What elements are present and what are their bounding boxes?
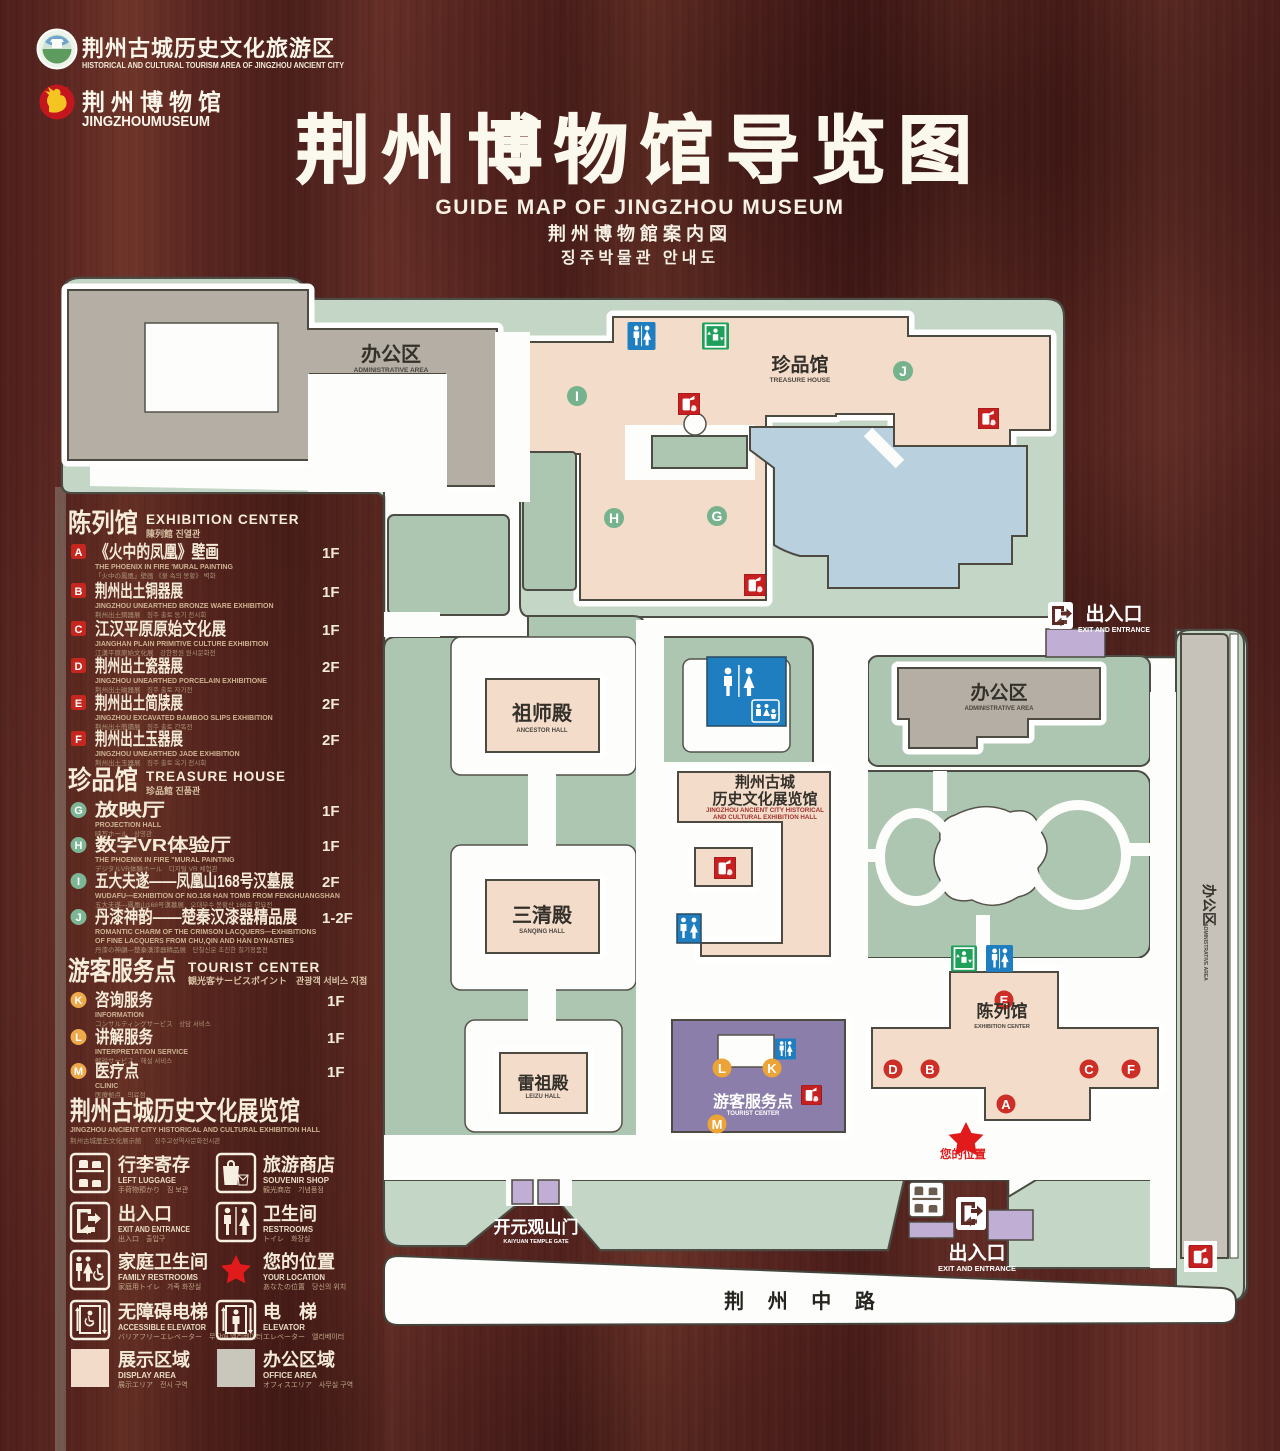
svg-text:丹漆神韵——楚秦汉漆器精品展: 丹漆神韵——楚秦汉漆器精品展 xyxy=(95,907,297,927)
svg-text:2F: 2F xyxy=(322,874,340,891)
svg-text:観光商店 기념품점: 観光商店 기념품점 xyxy=(263,1185,324,1194)
svg-text:办公区: 办公区 xyxy=(970,681,1027,704)
svg-text:ANCESTOR HALL: ANCESTOR HALL xyxy=(516,728,568,734)
svg-text:SANQING HALL: SANQING HALL xyxy=(519,929,565,935)
svg-text:荆州出土玉器展: 荆州出土玉器展 xyxy=(95,729,183,749)
svg-text:E: E xyxy=(75,698,82,710)
svg-text:観光客サービスポイント 관광객 서비스 지점: 観光客サービスポイント 관광객 서비스 지점 xyxy=(188,975,367,986)
svg-text:FAMILY RESTROOMS: FAMILY RESTROOMS xyxy=(118,1272,198,1282)
svg-text:RESTROOMS: RESTROOMS xyxy=(263,1224,313,1234)
svg-text:あなたの位置 당신의 위치: あなたの位置 당신의 위치 xyxy=(263,1282,346,1291)
svg-text:1-2F: 1-2F xyxy=(322,910,353,927)
svg-text:INFORMATION: INFORMATION xyxy=(95,1012,144,1019)
svg-text:丹漆の神韻—楚秦漢漆器精品展 단칠신운 초진한 칠기정품전: 丹漆の神韻—楚秦漢漆器精品展 단칠신운 초진한 칠기정품전 xyxy=(95,945,268,954)
svg-text:ADMINISTRATIVE AREA: ADMINISTRATIVE AREA xyxy=(965,706,1035,712)
svg-text:荆州古城历史文化旅游区: 荆州古城历史文化旅游区 xyxy=(82,36,335,61)
svg-text:エレベーター 엘리베이터: エレベーター 엘리베이터 xyxy=(263,1332,344,1341)
svg-text:办公区: 办公区 xyxy=(1201,884,1217,926)
svg-text:I: I xyxy=(77,876,80,888)
svg-text:医疗点: 医疗点 xyxy=(95,1061,139,1081)
svg-text:JINGZHOU UNEARTHED BRONZE WARE: JINGZHOU UNEARTHED BRONZE WARE EXHIBITIO… xyxy=(95,603,274,610)
svg-text:ELEVATOR: ELEVATOR xyxy=(263,1322,306,1332)
svg-text:「火中の鳳凰」壁画 《불 속의 봉황》 벽화: 「火中の鳳凰」壁画 《불 속의 봉황》 벽화 xyxy=(95,571,216,580)
svg-text:TOURIST CENTER: TOURIST CENTER xyxy=(727,1111,780,1117)
svg-text:1F: 1F xyxy=(322,622,340,639)
svg-text:无障碍电梯: 无障碍电梯 xyxy=(118,1301,208,1322)
svg-text:荆州出土铜器展: 荆州出土铜器展 xyxy=(95,581,183,601)
svg-text:您的位置: 您的位置 xyxy=(940,1147,986,1161)
svg-text:江汉平原原始文化展: 江汉平原原始文化展 xyxy=(95,619,226,639)
svg-text:出入口: 出入口 xyxy=(1085,602,1142,625)
svg-text:SOUVENIR SHOP: SOUVENIR SHOP xyxy=(263,1175,329,1185)
svg-text:荆州博物館案内図: 荆州博物館案内図 xyxy=(548,223,732,244)
svg-text:ADMINISTRATIVE AREA: ADMINISTRATIVE AREA xyxy=(354,367,429,374)
svg-text:三清殿: 三清殿 xyxy=(512,903,573,927)
svg-text:荆州出土瓷器展: 荆州出土瓷器展 xyxy=(95,656,183,676)
svg-text:D: D xyxy=(888,1062,897,1077)
svg-text:INTERPRETATION SERVICE: INTERPRETATION SERVICE xyxy=(95,1049,188,1056)
svg-text:ROMANTIC CHARM OF THE CRIMSON: ROMANTIC CHARM OF THE CRIMSON LACQUERS—E… xyxy=(95,929,317,936)
svg-text:JIANGHAN PLAIN PRIMITIVE CULTU: JIANGHAN PLAIN PRIMITIVE CULTURE EXHIBIT… xyxy=(95,641,268,648)
svg-text:OF FINE LACQUERS FROM CHU,QIN: OF FINE LACQUERS FROM CHU,QIN AND HAN DY… xyxy=(95,938,294,945)
svg-text:旅游商店: 旅游商店 xyxy=(263,1154,335,1175)
svg-text:出入口 출입구: 出入口 출입구 xyxy=(118,1234,166,1243)
svg-text:JINGZHOU ANCIENT CITY HISTORIC: JINGZHOU ANCIENT CITY HISTORICAL AND CUL… xyxy=(70,1127,321,1134)
svg-text:荆州古城: 荆州古城 xyxy=(735,773,795,791)
svg-text:B: B xyxy=(925,1062,934,1077)
svg-text:JINGZHOUMUSEUM: JINGZHOUMUSEUM xyxy=(82,114,210,130)
svg-text:YOUR LOCATION: YOUR LOCATION xyxy=(263,1272,325,1282)
svg-text:历史文化展览馆: 历史文化展览馆 xyxy=(712,790,817,808)
svg-text:ADMINISTRATIVE AREA: ADMINISTRATIVE AREA xyxy=(1202,923,1208,981)
svg-text:GUIDE MAP OF JINGZHOU MUSEUM: GUIDE MAP OF JINGZHOU MUSEUM xyxy=(435,196,844,219)
svg-text:G: G xyxy=(74,805,83,817)
svg-text:出入口: 出入口 xyxy=(948,1241,1005,1264)
svg-text:H: H xyxy=(609,510,619,526)
svg-text:办公区: 办公区 xyxy=(361,342,421,366)
svg-text:陳列館 진열관: 陳列館 진열관 xyxy=(146,528,201,539)
svg-text:EXIT AND ENTRANCE: EXIT AND ENTRANCE xyxy=(938,1264,1016,1273)
svg-text:TREASURE HOUSE: TREASURE HOUSE xyxy=(146,769,286,784)
svg-text:行李寄存: 行李寄存 xyxy=(117,1154,190,1175)
svg-text:荆州古城歴史文化展示館 징주고성역사문화전시관: 荆州古城歴史文化展示館 징주고성역사문화전시관 xyxy=(70,1136,220,1145)
svg-text:珍品館 진품관: 珍品館 진품관 xyxy=(146,785,201,796)
svg-text:AND CULTURAL EXHIBITION HALL: AND CULTURAL EXHIBITION HALL xyxy=(713,815,817,821)
svg-text:家庭用トイレ 가족 화장실: 家庭用トイレ 가족 화장실 xyxy=(118,1282,201,1291)
svg-text:EXHIBITION CENTER: EXHIBITION CENTER xyxy=(146,512,300,527)
svg-text:电 梯: 电 梯 xyxy=(263,1301,317,1322)
svg-text:出入口: 出入口 xyxy=(118,1203,172,1224)
svg-text:LEFT LUGGAGE: LEFT LUGGAGE xyxy=(118,1175,176,1185)
svg-text:LEIZU HALL: LEIZU HALL xyxy=(526,1094,561,1100)
svg-text:J: J xyxy=(75,912,81,924)
svg-text:1F: 1F xyxy=(322,584,340,601)
svg-text:开元观山门: 开元观山门 xyxy=(494,1217,579,1237)
svg-text:ACCESSIBLE ELEVATOR: ACCESSIBLE ELEVATOR xyxy=(118,1322,207,1332)
svg-text:JINGZHOU ANCIENT CITY HISTORIC: JINGZHOU ANCIENT CITY HISTORICAL xyxy=(706,808,824,814)
svg-text:游客服务点: 游客服务点 xyxy=(713,1092,793,1111)
svg-text:讲解服务: 讲解服务 xyxy=(95,1027,153,1047)
svg-text:C: C xyxy=(1084,1062,1094,1077)
svg-text:A: A xyxy=(1001,1097,1011,1112)
svg-text:PROJECTION HALL: PROJECTION HALL xyxy=(95,822,162,829)
svg-text:DISPLAY AREA: DISPLAY AREA xyxy=(118,1370,176,1380)
svg-text:数字VR体验厅: 数字VR体验厅 xyxy=(95,835,232,855)
svg-text:WUDAFU—EXHIBITION OF NO.168 HA: WUDAFU—EXHIBITION OF NO.168 HAN TOMB FRO… xyxy=(95,893,340,900)
svg-text:EXIT AND ENTRANCE: EXIT AND ENTRANCE xyxy=(1078,627,1150,634)
svg-text:G: G xyxy=(712,508,723,524)
svg-text:荆州博物馆: 荆州博物馆 xyxy=(82,89,227,115)
svg-text:JINGZHOU UNEARTHED PORCELAIN E: JINGZHOU UNEARTHED PORCELAIN EXHIBITIONE xyxy=(95,678,267,685)
svg-text:办公区域: 办公区域 xyxy=(263,1349,335,1370)
svg-text:荆州博物馆导览图: 荆州博物馆导览图 xyxy=(296,109,984,192)
svg-text:1F: 1F xyxy=(327,1064,345,1081)
svg-text:EXHIBITION CENTER: EXHIBITION CENTER xyxy=(974,1024,1030,1030)
svg-text:陈列馆: 陈列馆 xyxy=(977,1001,1028,1021)
svg-text:H: H xyxy=(75,840,83,852)
svg-text:荆 州 中 路: 荆 州 中 路 xyxy=(724,1289,884,1313)
svg-text:1F: 1F xyxy=(322,803,340,820)
svg-text:卫生间: 卫生间 xyxy=(263,1203,317,1224)
svg-text:JINGZHOU UNEARTHED JADE EXHIBI: JINGZHOU UNEARTHED JADE EXHIBITION xyxy=(95,751,240,758)
svg-text:トイレ 화장실: トイレ 화장실 xyxy=(263,1234,310,1243)
svg-text:1F: 1F xyxy=(322,545,340,562)
svg-text:1F: 1F xyxy=(327,993,345,1010)
svg-text:2F: 2F xyxy=(322,696,340,713)
svg-text:OFFICE AREA: OFFICE AREA xyxy=(263,1370,317,1380)
svg-text:F: F xyxy=(1127,1062,1135,1077)
svg-text:咨询服务: 咨询服务 xyxy=(95,990,153,1010)
svg-text:1F: 1F xyxy=(327,1030,345,1047)
svg-text:TOURIST CENTER: TOURIST CENTER xyxy=(188,960,320,975)
svg-text:D: D xyxy=(75,661,83,673)
svg-text:THE PHOENIX IN FIRE "MURAL PAI: THE PHOENIX IN FIRE "MURAL PAINTING xyxy=(95,857,235,864)
svg-text:M: M xyxy=(712,1117,723,1132)
svg-text:HISTORICAL AND CULTURAL TOURIS: HISTORICAL AND CULTURAL TOURISM AREA OF … xyxy=(82,60,344,70)
svg-text:珍品馆: 珍品馆 xyxy=(771,353,828,376)
svg-text:祖师殿: 祖师殿 xyxy=(511,701,573,725)
svg-text:2F: 2F xyxy=(322,732,340,749)
svg-text:放映厅: 放映厅 xyxy=(94,800,166,820)
svg-text:展示エリア 전시 구역: 展示エリア 전시 구역 xyxy=(118,1380,188,1389)
svg-text:荆州出土銅器展 징주 출토 동기 전시회: 荆州出土銅器展 징주 출토 동기 전시회 xyxy=(95,610,206,619)
svg-text:TREASURE HOUSE: TREASURE HOUSE xyxy=(770,377,831,384)
svg-text:珍品馆: 珍品馆 xyxy=(68,765,138,795)
svg-text:KAIYUAN TEMPLE GATE: KAIYUAN TEMPLE GATE xyxy=(503,1239,569,1245)
svg-text:THE PHOENIX IN FIRE 'MURAL PAI: THE PHOENIX IN FIRE 'MURAL PAINTING xyxy=(95,564,233,571)
svg-text:展示区域: 展示区域 xyxy=(118,1349,190,1370)
svg-text:JINGZHOU EXCAVATED BAMBOO SLIP: JINGZHOU EXCAVATED BAMBOO SLIPS EXHIBITI… xyxy=(95,715,273,722)
svg-text:C: C xyxy=(75,624,83,636)
svg-text:B: B xyxy=(75,586,83,598)
svg-text:家庭卫生间: 家庭卫生间 xyxy=(118,1251,208,1272)
svg-text:EXIT AND ENTRANCE: EXIT AND ENTRANCE xyxy=(118,1224,190,1234)
svg-text:荆州出土简牍展: 荆州出土简牍展 xyxy=(95,693,183,713)
svg-text:雷祖殿: 雷祖殿 xyxy=(518,1073,570,1093)
svg-text:A: A xyxy=(75,547,83,559)
svg-text:K: K xyxy=(75,995,83,1007)
svg-text:游客服务点: 游客服务点 xyxy=(68,956,176,986)
svg-text:징주박물관 안내도: 징주박물관 안내도 xyxy=(561,248,719,267)
svg-text:荆州古城历史文化展览馆: 荆州古城历史文化展览馆 xyxy=(70,1096,300,1126)
svg-text:手荷物預かり 짐 보관: 手荷物預かり 짐 보관 xyxy=(118,1185,189,1194)
svg-text:2F: 2F xyxy=(322,659,340,676)
svg-text:1F: 1F xyxy=(322,838,340,855)
svg-text:F: F xyxy=(75,734,82,746)
svg-text:I: I xyxy=(575,388,579,404)
svg-text:J: J xyxy=(899,363,907,379)
svg-text:L: L xyxy=(718,1061,726,1076)
svg-text:オフィスエリア 사무실 구역: オフィスエリア 사무실 구역 xyxy=(263,1380,353,1389)
svg-text:L: L xyxy=(75,1032,82,1044)
svg-text:《火中的凤凰》壁画: 《火中的凤凰》壁画 xyxy=(95,542,219,562)
svg-text:您的位置: 您的位置 xyxy=(263,1251,335,1272)
svg-text:CLINIC: CLINIC xyxy=(95,1083,118,1090)
svg-text:M: M xyxy=(74,1066,83,1078)
svg-text:陈列馆: 陈列馆 xyxy=(68,508,138,538)
svg-text:K: K xyxy=(767,1061,777,1076)
svg-text:五大夫遂——凤凰山168号汉墓展: 五大夫遂——凤凰山168号汉墓展 xyxy=(95,871,294,891)
